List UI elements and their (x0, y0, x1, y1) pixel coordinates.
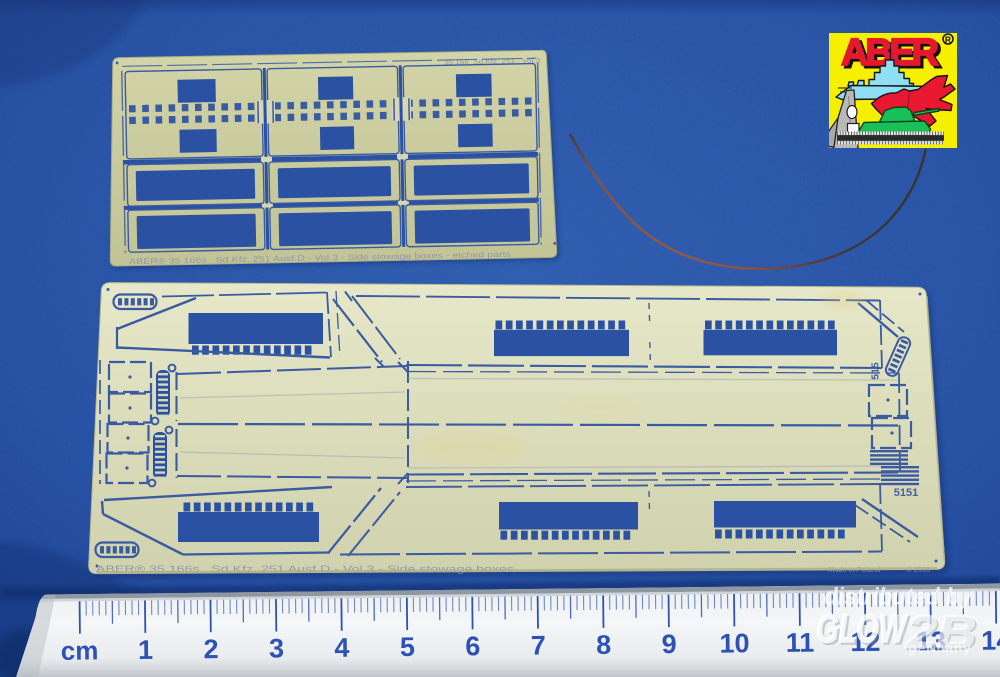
svg-text:cm: cm (61, 635, 99, 665)
svg-text:9: 9 (661, 629, 676, 659)
svg-text:14: 14 (981, 625, 1000, 655)
svg-text:3: 3 (269, 633, 284, 663)
svg-text:7: 7 (531, 631, 546, 661)
svg-text:© 2005: © 2005 (906, 565, 930, 574)
svg-text:4: 4 (334, 633, 349, 663)
svg-text:515: 515 (870, 362, 882, 380)
svg-text:germany: germany (908, 641, 971, 656)
svg-text:5: 5 (400, 632, 415, 662)
svg-text:2: 2 (203, 634, 218, 664)
svg-text:6: 6 (465, 631, 480, 661)
svg-text:8: 8 (596, 630, 611, 660)
svg-text:1: 1 (138, 635, 153, 665)
svg-text:10: 10 (719, 628, 749, 658)
svg-text:GLOW: GLOW (816, 607, 908, 651)
svg-text:11: 11 (786, 628, 815, 658)
svg-text:R: R (945, 34, 951, 44)
svg-text:ABER® 35 166s Sd.Kfz. 251 Au: ABER® 35 166s Sd.Kfz. 251 Ausf.D - Vol.3… (96, 564, 514, 575)
svg-text:5151: 5151 (894, 487, 918, 499)
